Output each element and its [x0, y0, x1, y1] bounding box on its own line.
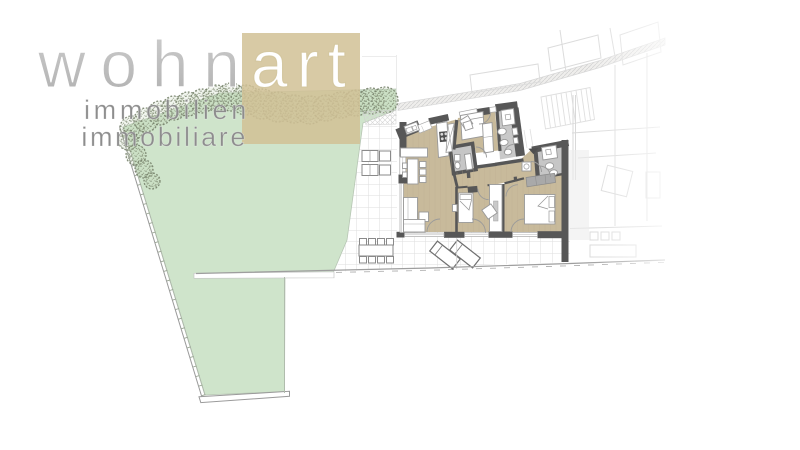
svg-text:art: art [251, 27, 355, 101]
svg-text:immobilien: immobilien [84, 95, 250, 125]
svg-text:immobiliare: immobiliare [81, 122, 248, 152]
svg-text:wohn: wohn [37, 27, 255, 101]
